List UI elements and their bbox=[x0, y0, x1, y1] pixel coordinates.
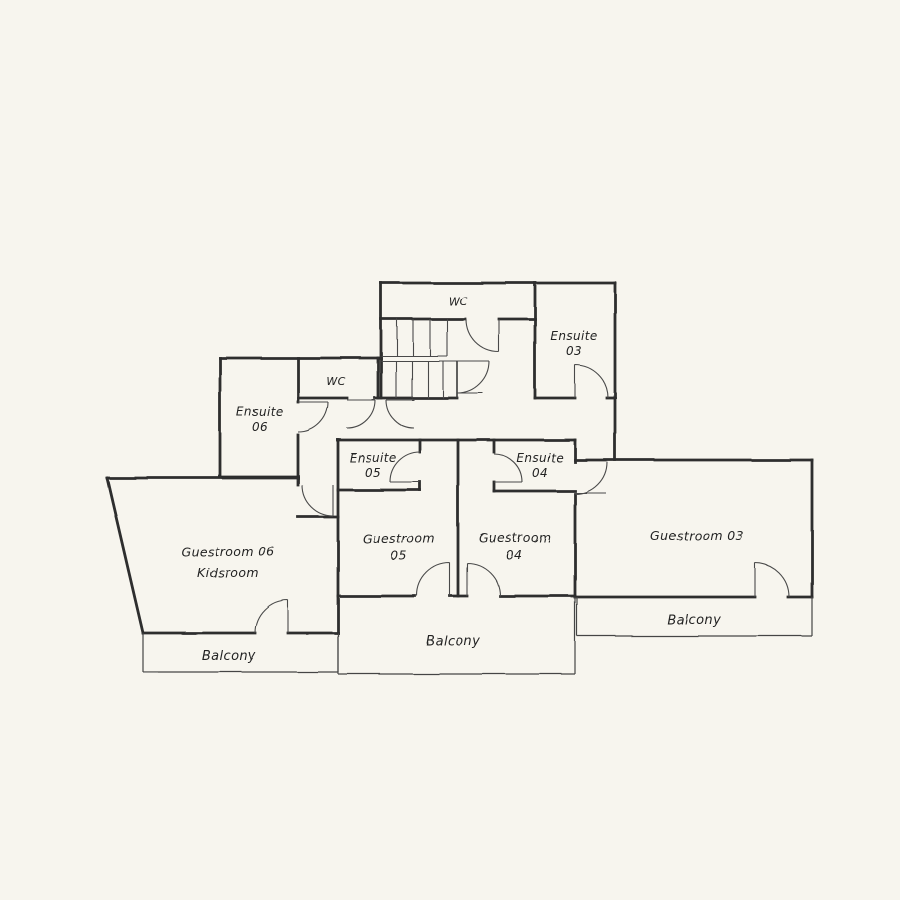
door-ensuite-03 bbox=[575, 365, 608, 398]
room-label-guestroom-03: Guestroom 03 bbox=[650, 528, 744, 543]
door-wc-top bbox=[466, 319, 499, 352]
door-guestroom-06 bbox=[302, 485, 333, 516]
door-stair-landing bbox=[457, 361, 489, 393]
room-number-guestroom-04: 04 bbox=[506, 547, 523, 562]
door-guestroom-04-balcony bbox=[467, 563, 500, 596]
door-guestroom-03-balcony bbox=[755, 563, 789, 597]
floorplan: WC Ensuite 03 WC Ensuite 06 Ensuite 05 E… bbox=[0, 0, 900, 900]
room-label-guestroom-05: Guestroom bbox=[363, 531, 436, 546]
room-label-ensuite-06: Ensuite bbox=[236, 405, 283, 419]
room-label-balcony-middle: Balcony bbox=[426, 634, 480, 649]
room-number-guestroom-05: 05 bbox=[391, 548, 408, 563]
door-corridor bbox=[386, 400, 414, 428]
door-swing-arcs bbox=[255, 319, 789, 633]
door-wc-mid bbox=[347, 400, 375, 428]
door-guestroom-03 bbox=[575, 462, 607, 494]
stair-lower-flight bbox=[381, 361, 457, 398]
door-ensuite-06 bbox=[298, 402, 328, 432]
room-label-balcony-left: Balcony bbox=[202, 649, 256, 664]
room-label-ensuite-03: Ensuite bbox=[550, 329, 597, 343]
room-label-guestroom-06: Guestroom 06 bbox=[181, 544, 275, 559]
room-label-wc-top: WC bbox=[448, 295, 467, 308]
room-number-ensuite-05: 05 bbox=[365, 466, 381, 480]
room-label-guestroom-04: Guestroom bbox=[479, 530, 552, 545]
stair-upper-flight bbox=[381, 319, 447, 356]
page-background: WC Ensuite 03 WC Ensuite 06 Ensuite 05 E… bbox=[0, 0, 900, 900]
room-label-ensuite-04: Ensuite bbox=[516, 451, 563, 465]
room-number-ensuite-03: 03 bbox=[566, 344, 582, 358]
staircase bbox=[381, 319, 457, 398]
door-guestroom-05-balcony bbox=[417, 563, 450, 596]
room-number-ensuite-04: 04 bbox=[532, 466, 548, 480]
door-guestroom-06-balcony bbox=[255, 600, 288, 633]
room-label-ensuite-05: Ensuite bbox=[349, 451, 396, 465]
room-label-kidsroom: Kidsroom bbox=[197, 565, 259, 580]
room-label-balcony-right: Balcony bbox=[667, 613, 721, 628]
walls-structural bbox=[107, 283, 812, 633]
room-number-ensuite-06: 06 bbox=[252, 420, 268, 434]
room-label-wc-mid: WC bbox=[326, 375, 345, 388]
